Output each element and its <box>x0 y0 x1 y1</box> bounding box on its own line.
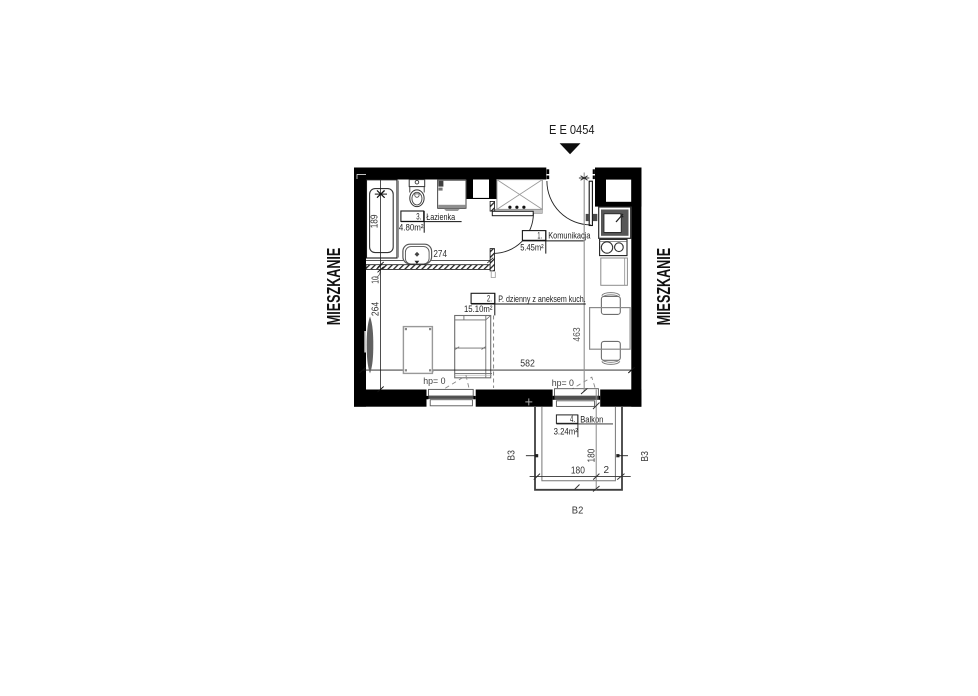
svg-text:2.: 2. <box>487 294 492 305</box>
svg-text:1.: 1. <box>537 230 542 241</box>
svg-text:hp= 0: hp= 0 <box>552 378 574 389</box>
svg-text:B2: B2 <box>572 505 584 517</box>
svg-text:P. dzienny z aneksem kuch.: P. dzienny z aneksem kuch. <box>498 294 586 305</box>
svg-text:4.80m²: 4.80m² <box>399 222 424 233</box>
svg-text:4.: 4. <box>570 414 575 425</box>
svg-text:MIESZKANIE: MIESZKANIE <box>654 248 674 326</box>
svg-text:2: 2 <box>604 465 610 476</box>
svg-text:180: 180 <box>586 448 597 462</box>
svg-text:B3: B3 <box>640 451 651 462</box>
svg-text:Komunikacja: Komunikacja <box>548 231 591 242</box>
svg-text:MIESZKANIE: MIESZKANIE <box>324 248 344 326</box>
svg-text:3.: 3. <box>416 211 421 222</box>
svg-text:10: 10 <box>370 276 381 284</box>
svg-text:582: 582 <box>520 358 535 369</box>
svg-text:274: 274 <box>433 249 447 260</box>
svg-text:E E 0454: E E 0454 <box>549 122 595 137</box>
svg-text:463: 463 <box>572 327 583 342</box>
svg-text:B3: B3 <box>507 450 518 461</box>
svg-text:189: 189 <box>370 214 381 228</box>
svg-text:hp= 0: hp= 0 <box>423 376 445 387</box>
svg-text:3.24m²: 3.24m² <box>554 427 578 438</box>
svg-text:180: 180 <box>571 466 585 477</box>
svg-text:5.45m²: 5.45m² <box>520 243 543 254</box>
svg-text:15.10m²: 15.10m² <box>464 304 492 315</box>
svg-text:264: 264 <box>370 302 381 317</box>
